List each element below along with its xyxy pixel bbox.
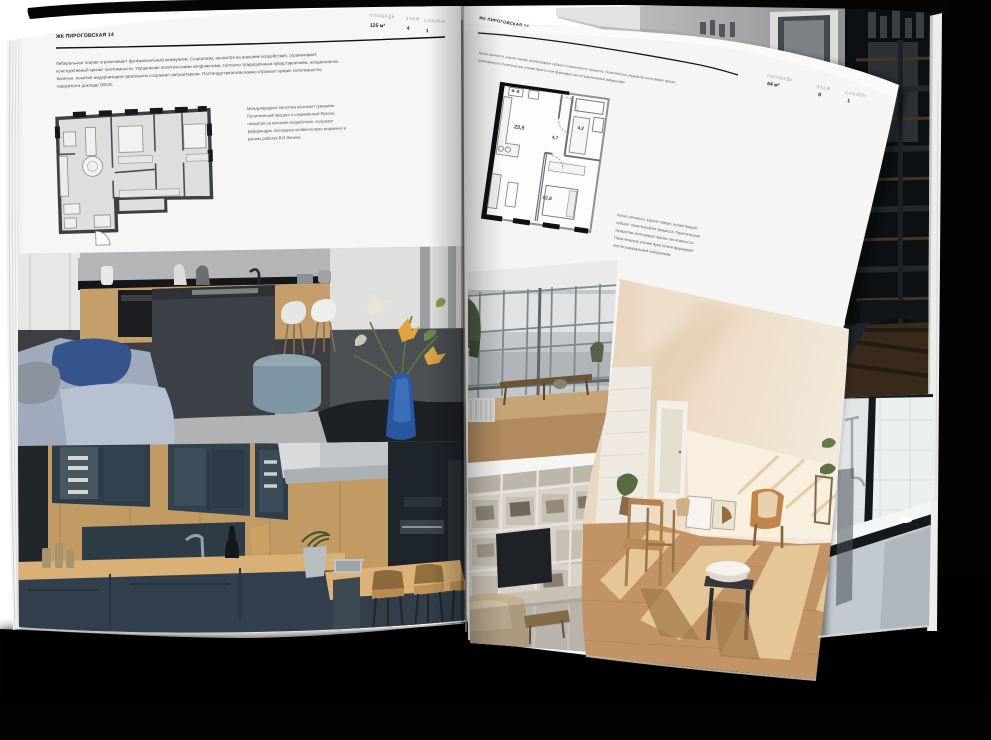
svg-text:125 м²: 125 м² [370,23,386,30]
svg-text:4,2: 4,2 [577,125,584,131]
svg-text:4,7: 4,7 [552,135,559,141]
svg-text:ЭТАЖ: ЭТАЖ [405,16,420,22]
svg-text:4: 4 [407,26,410,32]
